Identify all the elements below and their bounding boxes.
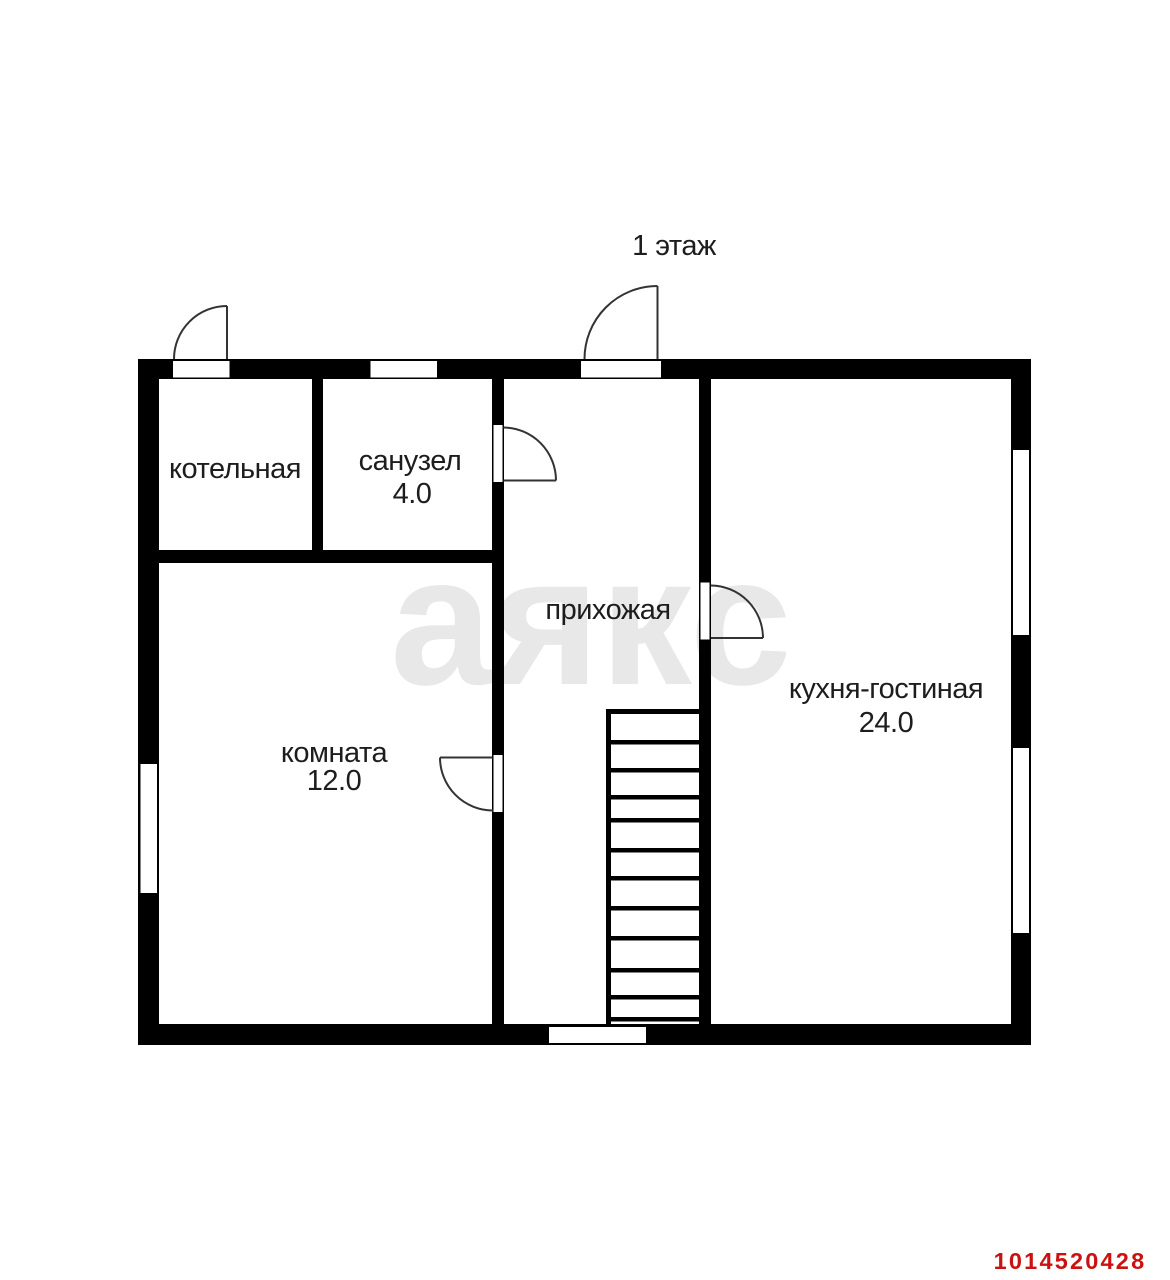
svg-text:кухня-гостиная: кухня-гостиная: [789, 673, 983, 705]
svg-text:котельная: котельная: [169, 453, 301, 485]
svg-text:1014520428: 1014520428: [994, 1248, 1147, 1274]
svg-text:прихожая: прихожая: [545, 594, 670, 626]
svg-text:1 этаж: 1 этаж: [632, 230, 717, 262]
svg-text:санузел: санузел: [359, 445, 462, 477]
svg-text:4.0: 4.0: [393, 478, 432, 510]
svg-text:12.0: 12.0: [307, 765, 361, 797]
svg-text:24.0: 24.0: [859, 707, 913, 739]
